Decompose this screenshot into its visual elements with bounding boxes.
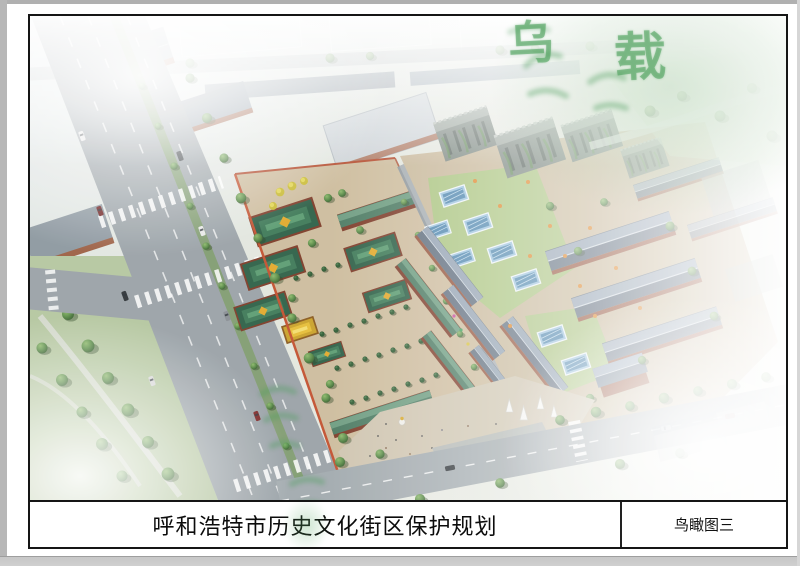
page-margin-top bbox=[0, 0, 800, 4]
page-margin-left bbox=[0, 0, 7, 566]
page-margin-bottom bbox=[0, 556, 800, 566]
figure-label: 鸟瞰图三 bbox=[674, 514, 734, 535]
title-bar: 呼和浩特市历史文化街区保护规划 鸟瞰图三 bbox=[30, 500, 786, 547]
mist-overlay bbox=[30, 16, 786, 500]
aerial-rendering bbox=[30, 16, 786, 500]
watermark-smudge bbox=[282, 502, 330, 547]
drawing-frame: 乌 载 呼和浩特市历史文化街区保护规划 鸟瞰图三 bbox=[28, 14, 788, 549]
figure-label-cell: 鸟瞰图三 bbox=[620, 502, 786, 547]
aerial-render-image: 乌 载 bbox=[30, 16, 786, 500]
drawing-sheet: 乌 载 呼和浩特市历史文化街区保护规划 鸟瞰图三 bbox=[0, 0, 800, 566]
title-cell: 呼和浩特市历史文化街区保护规划 bbox=[30, 502, 620, 547]
